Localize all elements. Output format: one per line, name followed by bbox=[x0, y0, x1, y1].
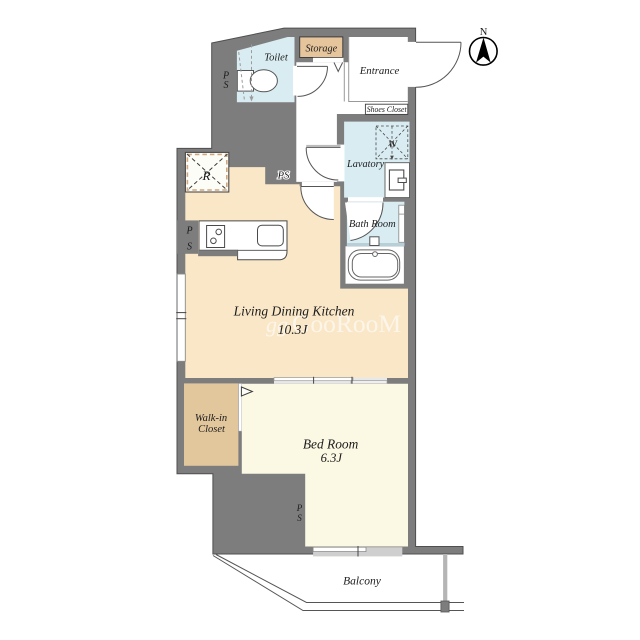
svg-text:R: R bbox=[202, 168, 211, 183]
svg-text:10.3J: 10.3J bbox=[278, 322, 309, 337]
svg-text:Bath Room: Bath Room bbox=[349, 219, 396, 230]
svg-text:6.3J: 6.3J bbox=[321, 451, 344, 465]
svg-text:Balcony: Balcony bbox=[343, 576, 382, 588]
svg-text:Shoes Closet: Shoes Closet bbox=[367, 104, 408, 114]
svg-text:W: W bbox=[388, 140, 398, 151]
svg-text:Lavatory: Lavatory bbox=[346, 159, 385, 170]
svg-text:S: S bbox=[187, 242, 192, 253]
svg-text:Entrance: Entrance bbox=[359, 65, 400, 77]
svg-text:Toilet: Toilet bbox=[264, 53, 289, 64]
svg-text:S: S bbox=[224, 80, 229, 91]
svg-text:Closet: Closet bbox=[198, 424, 226, 435]
svg-text:P: P bbox=[185, 226, 192, 237]
svg-text:S: S bbox=[297, 513, 302, 523]
svg-text:Living Dining Kitchen: Living Dining Kitchen bbox=[233, 304, 355, 319]
svg-text:Walk-in: Walk-in bbox=[195, 413, 227, 424]
svg-text:Storage: Storage bbox=[305, 44, 337, 55]
svg-text:PS: PS bbox=[277, 170, 290, 181]
svg-text:N: N bbox=[480, 27, 488, 38]
svg-text:Bed Room: Bed Room bbox=[303, 437, 359, 452]
svg-text:P: P bbox=[296, 503, 303, 513]
